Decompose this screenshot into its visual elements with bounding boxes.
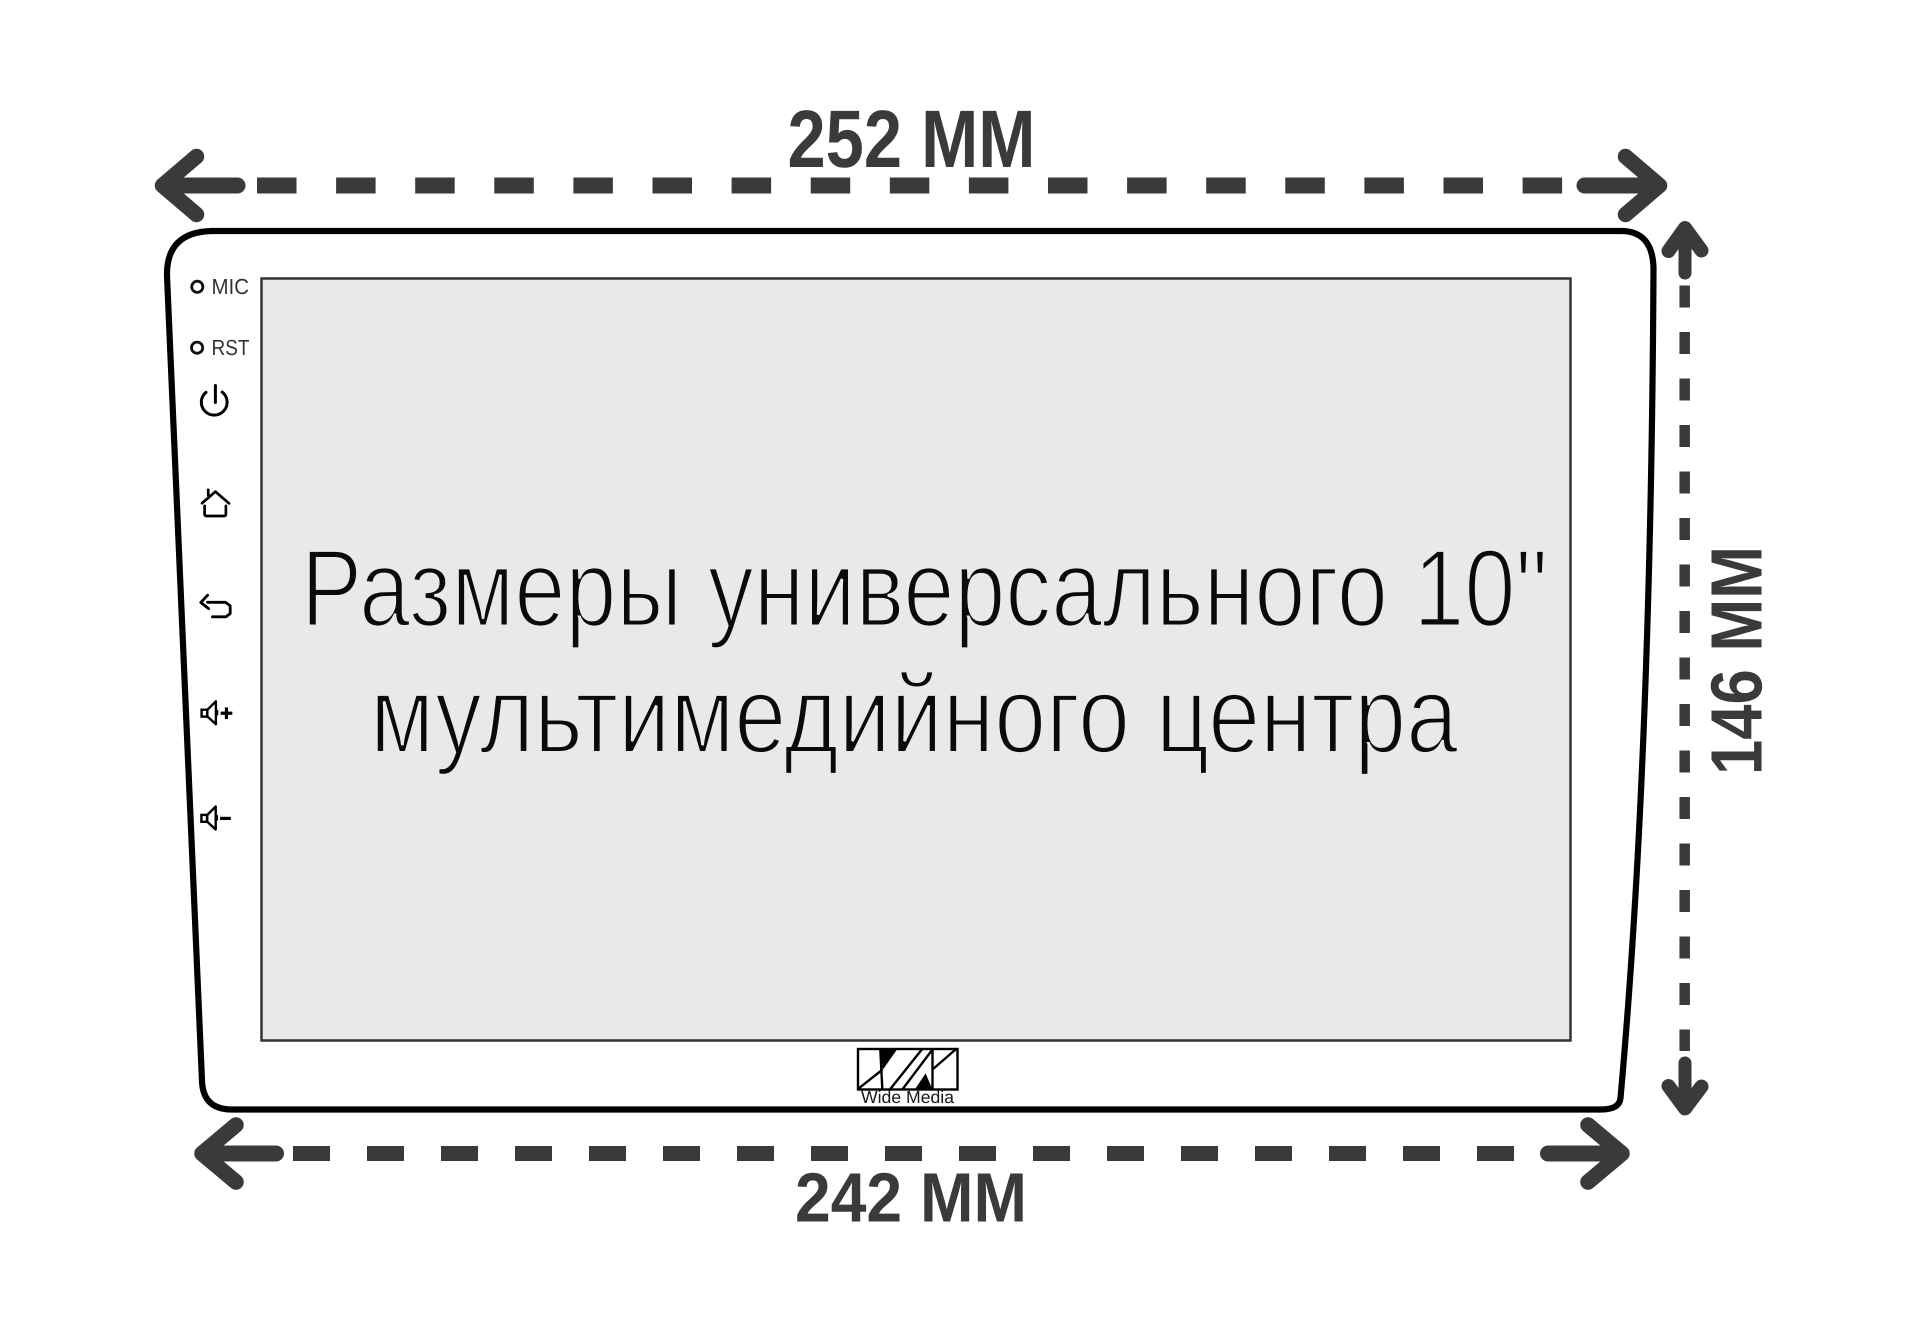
svg-text:252 MM: 252 MM xyxy=(788,94,1036,185)
svg-text:Размеры универсального 10": Размеры универсального 10" xyxy=(301,527,1548,650)
svg-text:242 MM: 242 MM xyxy=(795,1159,1027,1237)
svg-text:146 MM: 146 MM xyxy=(1697,546,1778,775)
svg-text:мультимедийного центра: мультимедийного центра xyxy=(370,654,1459,777)
